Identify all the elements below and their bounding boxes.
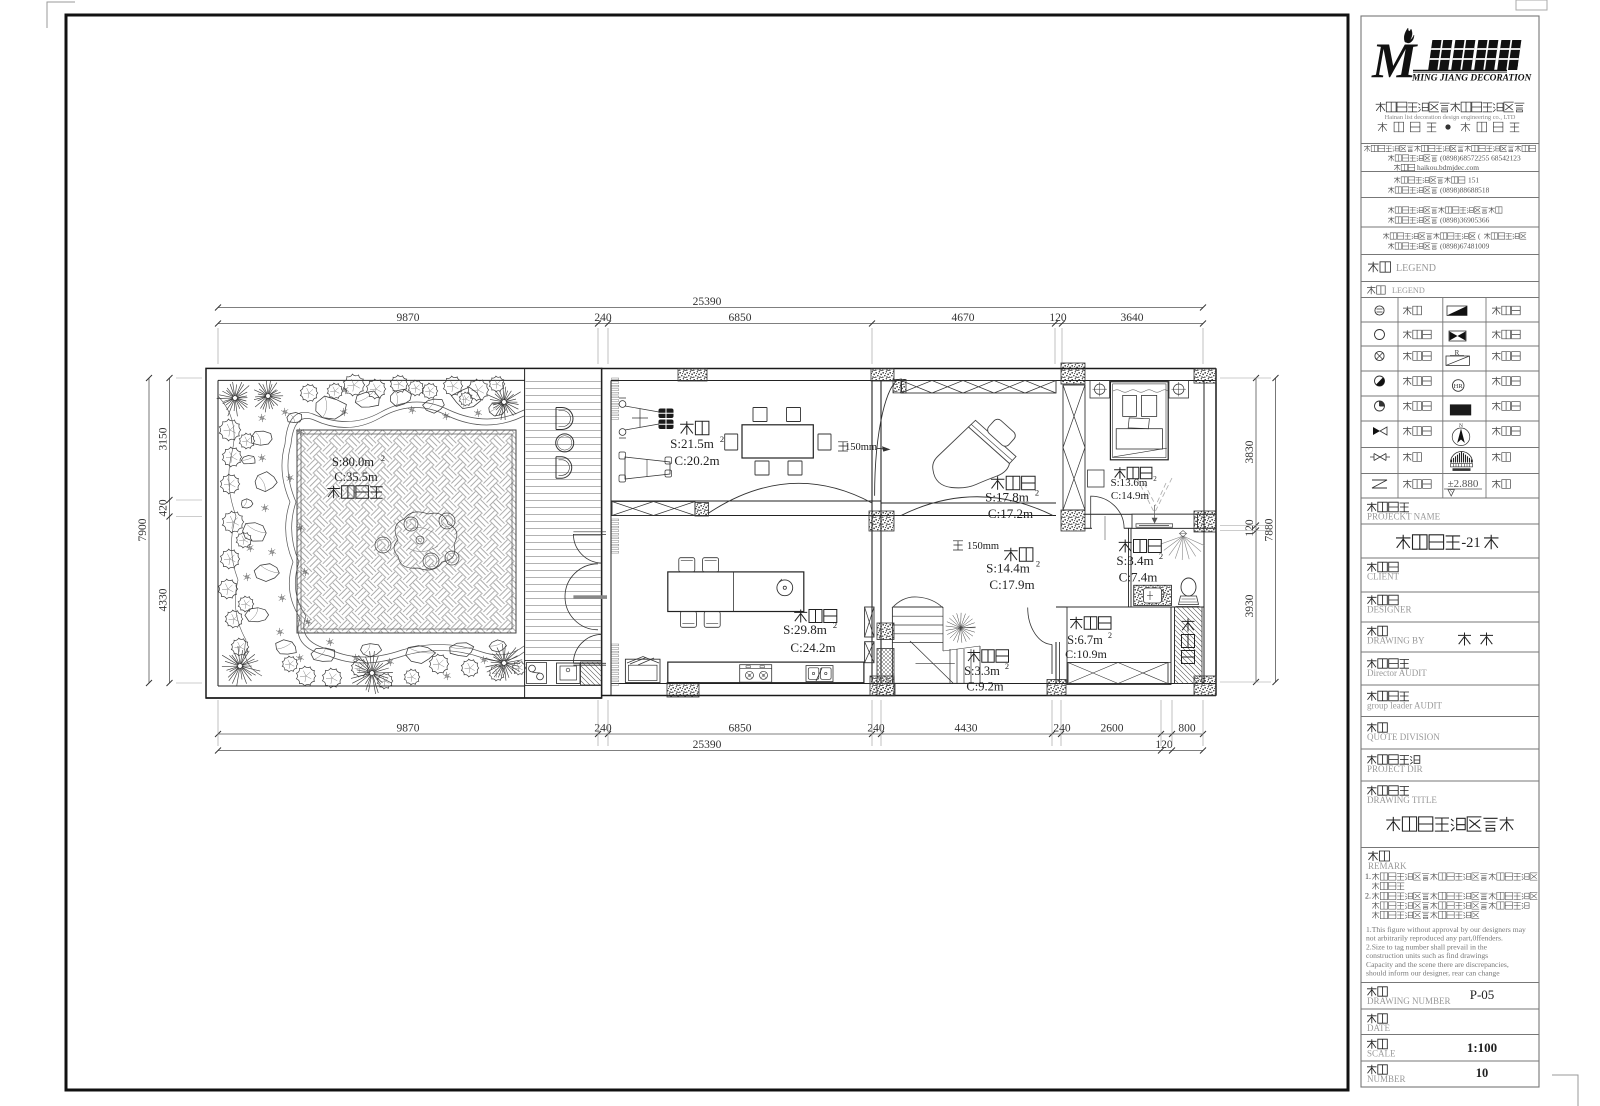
svg-text:240: 240 — [594, 723, 612, 735]
svg-text:120: 120 — [1155, 739, 1173, 751]
svg-text:C:7.4m: C:7.4m — [1119, 570, 1158, 585]
svg-text:800: 800 — [1178, 723, 1196, 735]
svg-text:REMARK: REMARK — [1368, 861, 1407, 871]
svg-text:2: 2 — [1005, 662, 1009, 671]
svg-text:PROJECT DIR: PROJECT DIR — [1367, 764, 1423, 774]
svg-text:150mm: 150mm — [967, 541, 999, 552]
svg-text:CLIENT: CLIENT — [1367, 572, 1399, 582]
svg-text:9870: 9870 — [397, 312, 420, 324]
svg-text:S:29.8m: S:29.8m — [783, 622, 827, 637]
svg-text:DRAWING NUMBER: DRAWING NUMBER — [1367, 996, 1451, 1006]
svg-text:C:10.9m: C:10.9m — [1065, 647, 1107, 661]
svg-text:P-05: P-05 — [1470, 987, 1495, 1002]
svg-text:420: 420 — [158, 499, 170, 517]
svg-text:2: 2 — [1035, 488, 1039, 498]
svg-text:4330: 4330 — [158, 588, 170, 611]
svg-text:C:20.2m: C:20.2m — [674, 453, 719, 468]
svg-text:PROJECKT NAME: PROJECKT NAME — [1367, 512, 1441, 522]
svg-text:NUMBER: NUMBER — [1367, 1074, 1406, 1084]
svg-text:C:9.2m: C:9.2m — [966, 680, 1003, 694]
svg-text:Director AUDIT: Director AUDIT — [1367, 668, 1427, 678]
svg-text:2: 2 — [381, 454, 385, 463]
svg-text:3930: 3930 — [1244, 594, 1256, 617]
svg-text:QUOTE DIVISION: QUOTE DIVISION — [1367, 732, 1440, 742]
svg-text:25390: 25390 — [693, 296, 722, 308]
svg-text:DESIGNER: DESIGNER — [1367, 605, 1412, 615]
svg-text:LEGEND: LEGEND — [1392, 286, 1425, 295]
svg-text:3830: 3830 — [1244, 440, 1256, 463]
svg-text:±2.880: ±2.880 — [1448, 478, 1479, 490]
svg-text:2: 2 — [1036, 559, 1040, 569]
svg-text:DATE: DATE — [1367, 1023, 1390, 1033]
svg-text:240: 240 — [1053, 723, 1071, 735]
svg-text:S:13.6m: S:13.6m — [1111, 477, 1148, 489]
svg-text:(0898)68572255 68542123: (0898)68572255 68542123 — [1440, 154, 1521, 163]
svg-text:SCALE: SCALE — [1367, 1049, 1396, 1059]
svg-text:C:17.2m: C:17.2m — [988, 506, 1033, 521]
svg-text:R: R — [1513, 63, 1516, 68]
svg-text:2.: 2. — [1365, 892, 1371, 901]
svg-text:3640: 3640 — [1121, 312, 1144, 324]
svg-text:MING JIANG DECORATION: MING JIANG DECORATION — [1411, 74, 1533, 84]
svg-text:should inform our designer, re: should inform our designer, rear can cha… — [1366, 969, 1500, 978]
svg-text:2: 2 — [1153, 475, 1157, 483]
svg-text:DRAWING TITLE: DRAWING TITLE — [1367, 795, 1437, 805]
svg-text:(0898)67481009: (0898)67481009 — [1440, 242, 1490, 251]
svg-text:25390: 25390 — [693, 739, 722, 751]
svg-text:120: 120 — [1244, 519, 1256, 537]
svg-text:2: 2 — [1108, 631, 1112, 640]
svg-text:HR: HR — [1454, 383, 1464, 390]
svg-text:2: 2 — [720, 434, 724, 444]
svg-text:C:24.2m: C:24.2m — [790, 640, 835, 655]
svg-text:LEGEND: LEGEND — [1396, 263, 1436, 274]
svg-text:240: 240 — [594, 312, 612, 324]
svg-text:construction units such as fin: construction units such as find drawings — [1366, 951, 1488, 960]
svg-text:2: 2 — [833, 620, 837, 630]
svg-text:10: 10 — [1476, 1066, 1489, 1080]
svg-text:S:14.4m: S:14.4m — [986, 561, 1030, 576]
svg-text:S:17.8m: S:17.8m — [985, 490, 1029, 505]
svg-text:9870: 9870 — [397, 723, 420, 735]
svg-text:6850: 6850 — [729, 312, 752, 324]
svg-text:6850: 6850 — [729, 723, 752, 735]
svg-text:151: 151 — [1468, 176, 1479, 185]
svg-text:DRAWING BY: DRAWING BY — [1367, 636, 1425, 646]
svg-text:3150: 3150 — [158, 427, 170, 450]
svg-text:4430: 4430 — [955, 723, 978, 735]
svg-text:7880: 7880 — [1264, 518, 1276, 541]
svg-text:S:6.7m: S:6.7m — [1067, 633, 1103, 647]
svg-text:240: 240 — [867, 723, 885, 735]
svg-text:S:3.4m: S:3.4m — [1116, 553, 1153, 568]
svg-text:4670: 4670 — [952, 312, 975, 324]
svg-text:C:14.9m: C:14.9m — [1111, 490, 1150, 502]
svg-text:(0898)36905366: (0898)36905366 — [1440, 216, 1490, 225]
svg-text:Hainan list decoration design: Hainan list decoration design engineerin… — [1385, 114, 1516, 121]
svg-text:S:21.5m: S:21.5m — [670, 436, 714, 451]
svg-text:Capacity and the scene there a: Capacity and the scene there are discrep… — [1366, 960, 1509, 969]
svg-text:(0898)88688518: (0898)88688518 — [1440, 186, 1490, 195]
svg-text:C:35.5m: C:35.5m — [334, 470, 378, 484]
svg-text:1.: 1. — [1365, 872, 1371, 881]
svg-text:-21: -21 — [1461, 535, 1480, 551]
svg-text:N: N — [1459, 423, 1463, 429]
svg-text:S:3.3m: S:3.3m — [964, 664, 1000, 678]
svg-text:2600: 2600 — [1101, 723, 1124, 735]
svg-text:2: 2 — [1159, 551, 1163, 561]
svg-text:group leader AUDIT: group leader AUDIT — [1367, 701, 1442, 711]
svg-text:120: 120 — [1049, 312, 1067, 324]
svg-text:not arbitrarily reproduced any: not arbitrarily reproduced any part,0ffe… — [1366, 934, 1503, 943]
svg-text:7900: 7900 — [137, 518, 149, 541]
svg-text:2.Size to tag number shall pre: 2.Size to tag number shall prevail in th… — [1366, 942, 1488, 951]
svg-text:haikou.bdmjdec.com: haikou.bdmjdec.com — [1417, 163, 1479, 172]
svg-text:1:100: 1:100 — [1467, 1040, 1497, 1055]
svg-text:1.This figure without approval: 1.This figure without approval by our de… — [1366, 925, 1526, 934]
svg-text:150mm: 150mm — [845, 442, 877, 453]
svg-text:(: ( — [1478, 232, 1481, 241]
svg-text:S:80.0m: S:80.0m — [332, 455, 374, 469]
svg-text:C:17.9m: C:17.9m — [989, 577, 1034, 592]
